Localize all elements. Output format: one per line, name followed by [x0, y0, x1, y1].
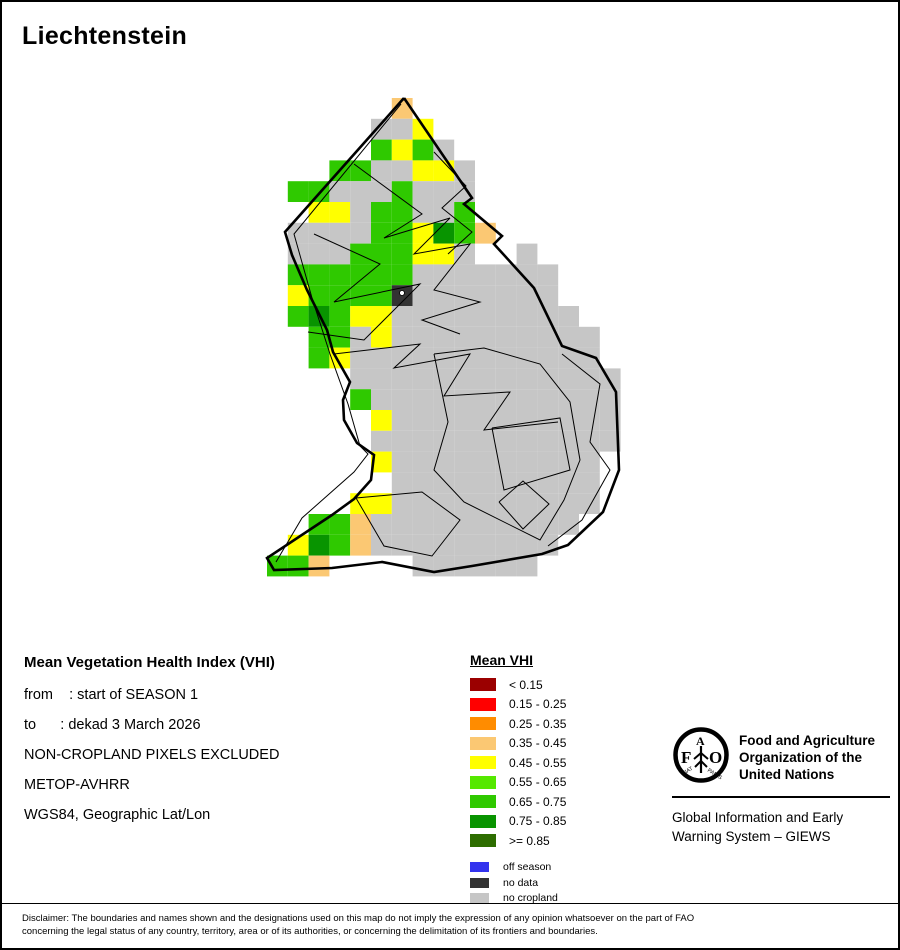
fao-header: F A O FIAT PANIS Food and AgricultureOrg… [672, 726, 892, 784]
vhi-cell [558, 368, 579, 389]
vhi-cell [579, 327, 600, 348]
info-line: from : start of SEASON 1 [24, 687, 454, 717]
vhi-cell [579, 452, 600, 473]
vhi-cell [350, 389, 371, 410]
svg-text:A: A [696, 734, 705, 748]
vhi-cell [309, 535, 330, 556]
legend-label: 0.35 - 0.45 [509, 736, 566, 750]
vhi-cell [392, 410, 413, 431]
legend-row: >= 0.85 [470, 831, 640, 851]
vhi-cell [475, 368, 496, 389]
vhi-cell [496, 285, 517, 306]
vhi-cell [475, 514, 496, 535]
legend-swatch [470, 815, 496, 828]
legend-label: < 0.15 [509, 678, 543, 692]
legend-row: 0.35 - 0.45 [470, 734, 640, 754]
vhi-cell [329, 285, 350, 306]
vhi-cell [309, 223, 330, 244]
fao-block: F A O FIAT PANIS Food and AgricultureOrg… [672, 726, 892, 846]
vhi-cell [517, 535, 538, 556]
vhi-cell [517, 327, 538, 348]
vhi-cell [288, 181, 309, 202]
legend-label: 0.55 - 0.65 [509, 775, 566, 789]
vhi-cell [392, 119, 413, 140]
vhi-cell [454, 452, 475, 473]
vhi-cell [392, 493, 413, 514]
legend-extra: off seasonno datano cropland [470, 860, 640, 906]
vhi-cell [371, 160, 392, 181]
vhi-cell [392, 140, 413, 161]
legend-row: 0.45 - 0.55 [470, 753, 640, 773]
vhi-cell [475, 327, 496, 348]
vhi-cell [329, 306, 350, 327]
vhi-cell [371, 410, 392, 431]
vhi-cell [350, 535, 371, 556]
vhi-cell [392, 327, 413, 348]
vhi-cell [413, 306, 434, 327]
vhi-cell [496, 306, 517, 327]
no-data-marker [400, 291, 405, 296]
vhi-cell [413, 160, 434, 181]
legend-label: 0.65 - 0.75 [509, 795, 566, 809]
vhi-cell [517, 514, 538, 535]
vhi-cell [454, 389, 475, 410]
legend-row: 0.65 - 0.75 [470, 792, 640, 812]
vhi-cell [433, 368, 454, 389]
vhi-cell [517, 368, 538, 389]
vhi-cell [496, 535, 517, 556]
vhi-cell [392, 368, 413, 389]
vhi-cell [496, 514, 517, 535]
vhi-cell [454, 410, 475, 431]
vhi-cell [433, 244, 454, 265]
vhi-cell [413, 389, 434, 410]
vhi-cell [433, 223, 454, 244]
vhi-cell [309, 264, 330, 285]
legend-swatch [470, 834, 496, 847]
vhi-cell [537, 431, 558, 452]
vhi-cell [309, 556, 330, 577]
vhi-cell [413, 181, 434, 202]
legend-row: < 0.15 [470, 675, 640, 695]
vhi-cell [517, 431, 538, 452]
fao-org-line: United Nations [739, 766, 875, 783]
info-line: METOP-AVHRR [24, 777, 454, 807]
vhi-cell [413, 472, 434, 493]
vhi-cell [371, 202, 392, 223]
vhi-cell [496, 472, 517, 493]
legend-swatch [470, 678, 496, 691]
vhi-cell [558, 472, 579, 493]
vhi-cell [517, 452, 538, 473]
vhi-cell [413, 514, 434, 535]
vhi-cell [475, 493, 496, 514]
vhi-cell [371, 140, 392, 161]
vhi-cell [475, 389, 496, 410]
report-page: Liechtenstein Mean Vegetation Health Ind… [0, 0, 900, 950]
legend-label: 0.75 - 0.85 [509, 814, 566, 828]
vhi-cell [350, 306, 371, 327]
vhi-cell [309, 244, 330, 265]
vhi-cell [413, 348, 434, 369]
vhi-cell [371, 285, 392, 306]
vhi-cell [433, 431, 454, 452]
legend-label: >= 0.85 [509, 834, 550, 848]
vhi-cell [413, 202, 434, 223]
vhi-cell [392, 389, 413, 410]
vhi-cell [413, 368, 434, 389]
vhi-cell [392, 535, 413, 556]
vhi-cell [329, 181, 350, 202]
giews-name: Global Information and EarlyWarning Syst… [672, 808, 892, 846]
vhi-cell [288, 306, 309, 327]
vhi-cell [288, 556, 309, 577]
disclaimer-text: Disclaimer: The boundaries and names sho… [22, 913, 878, 938]
svg-text:F: F [681, 748, 691, 767]
vhi-cell [329, 223, 350, 244]
vhi-cell [392, 431, 413, 452]
fao-org-name: Food and AgricultureOrganization of theU… [739, 732, 875, 783]
vhi-cell [496, 368, 517, 389]
vhi-cell [517, 244, 538, 265]
vhi-cell [496, 327, 517, 348]
vhi-cell [579, 389, 600, 410]
vhi-cell [433, 327, 454, 348]
vhi-cell [475, 264, 496, 285]
vhi-cell [433, 472, 454, 493]
vhi-cell [537, 514, 558, 535]
vhi-cell [392, 514, 413, 535]
vhi-cell [350, 160, 371, 181]
legend-swatch [470, 737, 496, 750]
vhi-cell [350, 368, 371, 389]
vhi-cell [371, 514, 392, 535]
vhi-cell [329, 264, 350, 285]
legend-swatch [470, 776, 496, 789]
legend-title: Mean VHI [470, 652, 640, 668]
info-lines: from : start of SEASON 1to : dekad 3 Mar… [24, 687, 454, 837]
vhi-cell [558, 306, 579, 327]
vhi-cell [413, 493, 434, 514]
vhi-cell [496, 348, 517, 369]
vhi-cell [350, 223, 371, 244]
legend-label: 0.25 - 0.35 [509, 717, 566, 731]
vhi-cell [350, 493, 371, 514]
vhi-cell [371, 223, 392, 244]
legend-row: 0.25 - 0.35 [470, 714, 640, 734]
vhi-cell [537, 264, 558, 285]
vhi-cell [454, 368, 475, 389]
giews-line: Warning System – GIEWS [672, 827, 892, 846]
vhi-cell [558, 410, 579, 431]
fao-org-line: Organization of the [739, 749, 875, 766]
vhi-cell [517, 410, 538, 431]
legend-swatch [470, 862, 489, 872]
vhi-cell [454, 493, 475, 514]
info-heading: Mean Vegetation Health Index (VHI) [24, 654, 454, 671]
info-line: to : dekad 3 March 2026 [24, 717, 454, 747]
vhi-cell [517, 306, 538, 327]
legend-swatch [470, 795, 496, 808]
vhi-cell [329, 244, 350, 265]
vhi-cell [392, 244, 413, 265]
vhi-cell [371, 535, 392, 556]
disclaimer-line: Disclaimer: The boundaries and names sho… [22, 913, 878, 926]
vhi-cell [579, 410, 600, 431]
vhi-cell [433, 285, 454, 306]
vhi-cell [433, 410, 454, 431]
vhi-legend: Mean VHI < 0.150.15 - 0.250.25 - 0.350.3… [470, 652, 640, 906]
vhi-cell [454, 514, 475, 535]
vhi-cell [392, 160, 413, 181]
vhi-cell [537, 368, 558, 389]
vhi-cell [371, 389, 392, 410]
vhi-cell [537, 452, 558, 473]
vhi-cell [475, 223, 496, 244]
vhi-cell [579, 493, 600, 514]
vhi-cell [579, 368, 600, 389]
legend-label: no data [503, 877, 538, 889]
info-line: WGS84, Geographic Lat/Lon [24, 807, 454, 837]
vhi-cell [329, 535, 350, 556]
vhi-cell [350, 514, 371, 535]
legend-swatch [470, 756, 496, 769]
vhi-cell [413, 140, 434, 161]
disclaimer-line: concerning the legal status of any count… [22, 926, 878, 939]
legend-row: 0.15 - 0.25 [470, 695, 640, 715]
vhi-cell [475, 306, 496, 327]
vhi-cell [350, 327, 371, 348]
fao-logo-icon: F A O FIAT PANIS [672, 726, 730, 784]
vhi-cell [454, 472, 475, 493]
vhi-cell [371, 264, 392, 285]
info-line: NON-CROPLAND PIXELS EXCLUDED [24, 747, 454, 777]
legend-label: 0.45 - 0.55 [509, 756, 566, 770]
disclaimer: Disclaimer: The boundaries and names sho… [2, 903, 898, 948]
vhi-cell [454, 431, 475, 452]
vhi-cell [579, 431, 600, 452]
vhi-cell [392, 264, 413, 285]
svg-text:O: O [709, 748, 722, 767]
legend-row: 0.75 - 0.85 [470, 812, 640, 832]
info-block: Mean Vegetation Health Index (VHI) from … [24, 654, 454, 837]
fao-org-line: Food and Agriculture [739, 732, 875, 749]
vhi-cell [433, 556, 454, 577]
legend-row: off season [470, 860, 640, 875]
vhi-cell [413, 452, 434, 473]
vhi-cell [350, 244, 371, 265]
vhi-cell [413, 556, 434, 577]
vhi-cell [350, 285, 371, 306]
vhi-cell [371, 306, 392, 327]
vhi-cell [392, 452, 413, 473]
vhi-cell [454, 264, 475, 285]
vhi-cell [496, 264, 517, 285]
vhi-cell [454, 535, 475, 556]
legend-row: no data [470, 875, 640, 890]
vhi-cell [517, 493, 538, 514]
vhi-cell [309, 348, 330, 369]
legend-swatch [470, 878, 489, 888]
giews-line: Global Information and Early [672, 808, 892, 827]
vhi-cell [371, 348, 392, 369]
vhi-cell [537, 389, 558, 410]
legend-classes: < 0.150.15 - 0.250.25 - 0.350.35 - 0.450… [470, 675, 640, 851]
vhi-cell [413, 264, 434, 285]
vhi-cell [350, 181, 371, 202]
vhi-cell [475, 452, 496, 473]
vhi-cell [350, 202, 371, 223]
vhi-cell [579, 472, 600, 493]
fao-divider [672, 796, 890, 798]
vhi-cell [371, 431, 392, 452]
vhi-cell [475, 535, 496, 556]
vhi-cell [537, 472, 558, 493]
legend-swatch [470, 698, 496, 711]
vhi-cell [433, 535, 454, 556]
vhi-cell [454, 327, 475, 348]
vhi-map [2, 2, 900, 632]
vhi-cell [350, 264, 371, 285]
vhi-cell [329, 202, 350, 223]
vhi-cell [433, 306, 454, 327]
vhi-cell [413, 410, 434, 431]
vhi-cell [433, 181, 454, 202]
legend-row: 0.55 - 0.65 [470, 773, 640, 793]
vhi-cell [517, 389, 538, 410]
legend-swatch [470, 717, 496, 730]
vhi-cell [329, 514, 350, 535]
legend-label: 0.15 - 0.25 [509, 697, 566, 711]
vhi-cell [475, 472, 496, 493]
legend-swatch [470, 893, 489, 903]
vhi-cell [433, 493, 454, 514]
legend-label: off season [503, 861, 551, 873]
vhi-cell [392, 472, 413, 493]
vhi-cell [496, 431, 517, 452]
vhi-cell [371, 368, 392, 389]
vhi-cell [413, 431, 434, 452]
